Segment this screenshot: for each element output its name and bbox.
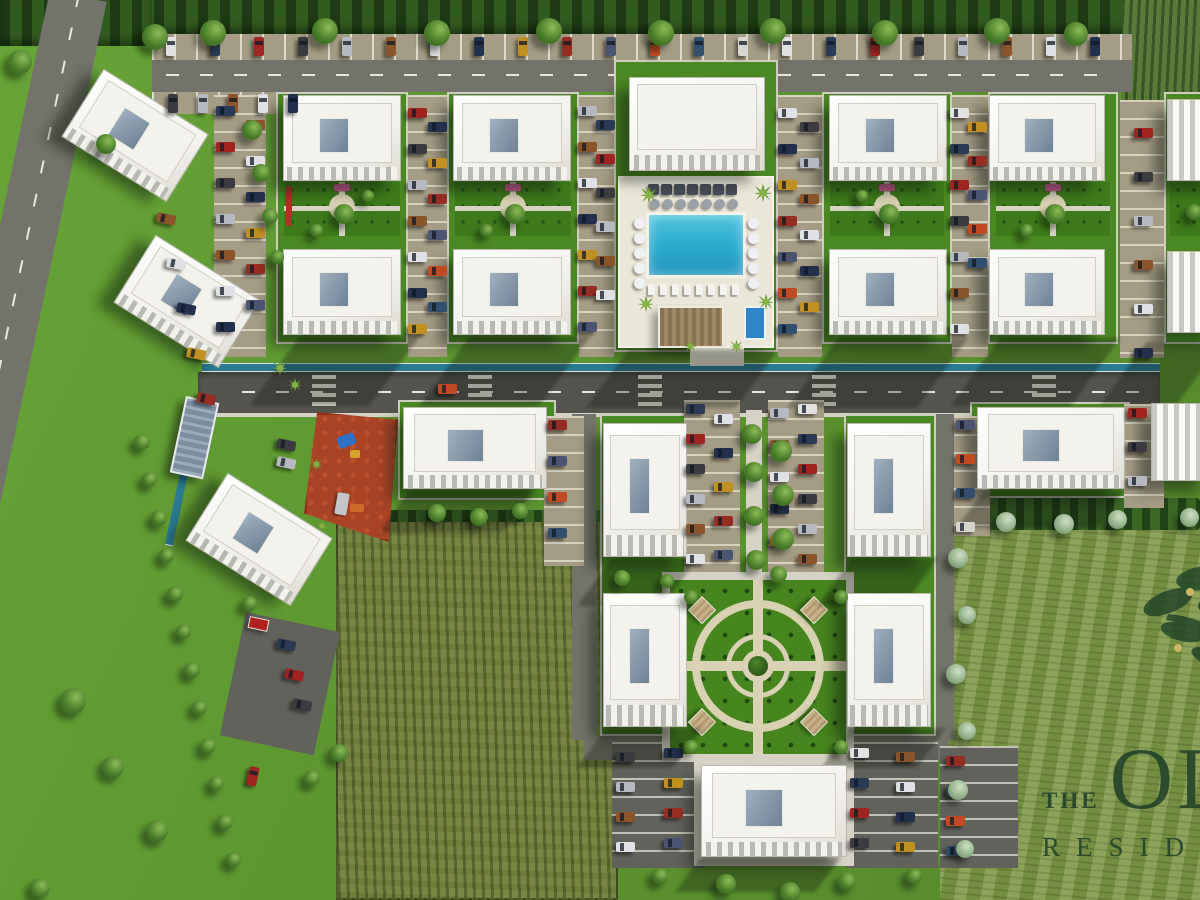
car-windshield (718, 517, 722, 525)
parked-car (950, 108, 969, 118)
parked-car (896, 782, 915, 792)
car-windshield (1138, 349, 1142, 357)
parked-car (778, 108, 797, 118)
roof-panel (231, 511, 275, 556)
cabana-canopy (713, 184, 724, 195)
parked-car (596, 256, 615, 266)
car-windshield (739, 41, 747, 45)
parked-car (896, 842, 915, 852)
parked-car (216, 214, 235, 224)
apartment-building (830, 96, 946, 180)
tree (505, 204, 525, 224)
logo-title: THE OLIVE (1042, 736, 1200, 824)
parked-car (778, 252, 797, 262)
car-windshield (600, 257, 604, 265)
car-windshield (668, 779, 672, 787)
car-windshield (288, 670, 294, 679)
car-windshield (774, 505, 778, 513)
car-windshield (900, 783, 904, 791)
tree (102, 756, 124, 778)
car-windshield (180, 304, 186, 313)
parked-car (548, 420, 567, 430)
car-windshield (954, 145, 958, 153)
parked-car (596, 222, 615, 232)
car-windshield (432, 267, 436, 275)
olive-tree-logo-icon (1118, 540, 1200, 740)
car-windshield (442, 385, 446, 393)
apartment-building (830, 250, 946, 334)
car-windshield (600, 155, 604, 163)
tree (146, 820, 168, 842)
apartment-building (630, 78, 764, 170)
roof-panel (489, 118, 519, 153)
car-windshield (412, 325, 416, 333)
parked-car (428, 158, 447, 168)
flower-bed (286, 186, 292, 226)
car-windshield (972, 157, 976, 165)
cabana-canopy (661, 184, 672, 195)
car-windshield (954, 325, 958, 333)
roof-panel (865, 272, 895, 307)
tree (184, 662, 200, 678)
parked-car (246, 766, 260, 787)
roof-panel (319, 272, 349, 307)
car-windshield (582, 179, 586, 187)
cabana-canopy (726, 184, 737, 195)
car-windshield (432, 231, 436, 239)
tree (159, 548, 174, 563)
car-windshield (915, 41, 923, 45)
apartment-building (284, 96, 400, 180)
car-windshield (249, 770, 258, 776)
car-windshield (954, 253, 958, 261)
sun-lounger (696, 284, 703, 295)
parked-car (798, 434, 817, 444)
car-windshield (804, 267, 808, 275)
parked-car (246, 228, 265, 238)
parked-car (428, 302, 447, 312)
pool-umbrella (748, 248, 759, 259)
tree (744, 506, 764, 526)
car-windshield (900, 843, 904, 851)
tree (958, 722, 976, 740)
car-windshield (299, 41, 307, 45)
tree (660, 574, 674, 588)
sun-lounger (648, 284, 655, 295)
tree (1108, 510, 1127, 529)
car-windshield (960, 455, 964, 463)
tree (906, 868, 922, 884)
tree (200, 20, 226, 46)
parked-car (694, 37, 704, 56)
parked-car (714, 448, 733, 458)
car-windshield (718, 415, 722, 423)
tree (209, 776, 224, 791)
car-windshield (718, 551, 722, 559)
tree (772, 484, 794, 506)
car-windshield (804, 123, 808, 131)
parked-car (578, 322, 597, 332)
parked-car (616, 812, 635, 822)
cabana-canopy (700, 184, 711, 195)
car-windshield (582, 107, 586, 115)
parked-car (408, 144, 427, 154)
parked-car (288, 94, 298, 113)
car-windshield (607, 41, 615, 45)
parked-car (686, 524, 705, 534)
car-windshield (782, 217, 786, 225)
parked-car (850, 838, 869, 848)
tree (270, 250, 284, 264)
parked-car (216, 286, 235, 296)
tree (1180, 508, 1199, 527)
parked-car (606, 37, 616, 56)
parked-car (778, 288, 797, 298)
car-windshield (600, 223, 604, 231)
tree (242, 596, 257, 611)
parked-car (578, 142, 597, 152)
car-windshield (802, 405, 806, 413)
tree (956, 840, 974, 858)
car-windshield (782, 289, 786, 297)
tree (312, 18, 338, 44)
parked-car (664, 838, 683, 848)
parked-car (664, 778, 683, 788)
car-windshield (600, 291, 604, 299)
tree (652, 868, 668, 884)
car-windshield (250, 157, 254, 165)
parked-car (714, 414, 733, 424)
parked-car (778, 216, 797, 226)
parked-car (1134, 260, 1153, 270)
car-windshield (972, 123, 976, 131)
roof-panel (865, 118, 895, 153)
car-windshield (950, 757, 954, 765)
flower-bed (505, 184, 521, 191)
car-windshield (432, 123, 436, 131)
apartment-building (848, 424, 930, 556)
car-windshield (250, 265, 254, 273)
car-windshield (220, 143, 224, 151)
patio-table (702, 199, 712, 209)
car-windshield (296, 700, 302, 709)
car-windshield (718, 449, 722, 457)
tree (716, 874, 736, 894)
tree (872, 20, 898, 46)
car-windshield (620, 843, 624, 851)
parked-car (1134, 348, 1153, 358)
car-windshield (802, 555, 806, 563)
tree (96, 134, 116, 154)
car-windshield (690, 495, 694, 503)
car-windshield (972, 225, 976, 233)
car-windshield (250, 229, 254, 237)
parked-car (850, 748, 869, 758)
logo-the-text: THE (1042, 788, 1100, 814)
car-windshield (432, 195, 436, 203)
car-windshield (1132, 409, 1136, 417)
parked-car (798, 404, 817, 414)
tree (428, 504, 446, 522)
car-windshield (668, 839, 672, 847)
car-windshield (552, 421, 556, 429)
car-windshield (620, 813, 624, 821)
car-windshield (387, 41, 395, 45)
car-windshield (802, 495, 806, 503)
car-windshield (343, 41, 351, 45)
car-windshield (412, 289, 416, 297)
roof-panel (745, 789, 782, 827)
car-windshield (280, 640, 286, 649)
tree (648, 20, 674, 46)
tree (834, 740, 848, 754)
car-windshield (289, 98, 297, 102)
kids-pool (744, 306, 766, 340)
roof-panel (629, 628, 650, 683)
parked-car (578, 214, 597, 224)
car-windshield (690, 405, 694, 413)
car-windshield (220, 287, 224, 295)
apartment-building (1152, 404, 1200, 480)
site-plan-render (0, 0, 1200, 900)
car-windshield (412, 109, 416, 117)
sun-lounger (684, 284, 691, 295)
parked-car (714, 482, 733, 492)
play-structure (350, 504, 364, 512)
parked-car (956, 488, 975, 498)
tree (772, 528, 794, 550)
parked-car (216, 106, 235, 116)
parked-car (616, 752, 635, 762)
parked-car (956, 420, 975, 430)
car-windshield (782, 181, 786, 189)
car-windshield (563, 41, 571, 45)
roof-panel (1024, 118, 1054, 153)
car-windshield (1047, 41, 1055, 45)
tree (304, 770, 320, 786)
tree (948, 780, 968, 800)
parked-car (246, 264, 265, 274)
car-windshield (229, 98, 237, 102)
car-windshield (220, 215, 224, 223)
car-windshield (854, 839, 858, 847)
car-windshield (972, 259, 976, 267)
apartment-building (454, 96, 570, 180)
car-windshield (954, 109, 958, 117)
parked-car (826, 37, 836, 56)
tree (217, 814, 233, 830)
sun-lounger (672, 284, 679, 295)
parked-car (156, 212, 177, 226)
parked-car (686, 434, 705, 444)
car-windshield (782, 145, 786, 153)
parked-car (1128, 442, 1147, 452)
parked-car (1090, 37, 1100, 56)
car-windshield (972, 191, 976, 199)
car-windshield (1138, 305, 1142, 313)
parking-stall-lines (544, 416, 584, 566)
parked-car (596, 154, 615, 164)
car-windshield (519, 41, 527, 45)
tree (536, 18, 562, 44)
car-windshield (802, 465, 806, 473)
pool-umbrella (634, 218, 645, 229)
tree (770, 566, 787, 583)
tree (838, 872, 856, 890)
parked-car (968, 224, 987, 234)
car-windshield (1138, 217, 1142, 225)
apartment-building (990, 96, 1104, 180)
parked-car (254, 37, 264, 56)
car-windshield (167, 41, 175, 45)
parked-car (968, 122, 987, 132)
pool-umbrella (634, 263, 645, 274)
pool-umbrella (748, 278, 759, 289)
parked-car (276, 438, 297, 452)
pool-umbrella (634, 278, 645, 289)
apartment-building (702, 766, 846, 856)
parked-car (1134, 216, 1153, 226)
parked-car (548, 456, 567, 466)
roof-panel (1022, 429, 1060, 463)
parked-car (578, 286, 597, 296)
parked-car (896, 812, 915, 822)
sun-lounger (720, 284, 727, 295)
tree (744, 462, 764, 482)
tree (167, 586, 183, 602)
parked-car (958, 37, 968, 56)
parked-car (956, 454, 975, 464)
tree (362, 190, 374, 202)
tree (252, 164, 270, 182)
car-windshield (900, 753, 904, 761)
parked-car (408, 252, 427, 262)
car-windshield (220, 323, 224, 331)
tree (151, 510, 167, 526)
pool-umbrella (748, 233, 759, 244)
parked-car (686, 554, 705, 564)
car-windshield (802, 435, 806, 443)
car-windshield (950, 817, 954, 825)
tree (684, 590, 698, 604)
parked-car (616, 842, 635, 852)
car-windshield (1138, 173, 1142, 181)
tree (480, 224, 493, 237)
parked-car (428, 194, 447, 204)
parked-car (596, 290, 615, 300)
apartment-building (404, 408, 546, 488)
tree (834, 590, 848, 604)
hedge (0, 0, 1200, 34)
parked-car (968, 190, 987, 200)
car-windshield (804, 231, 808, 239)
patio-table (689, 199, 699, 209)
car-windshield (804, 159, 808, 167)
tree (242, 120, 262, 140)
pool-umbrella (748, 218, 759, 229)
patio-table (728, 199, 738, 209)
car-windshield (552, 457, 556, 465)
cast-shadow (675, 858, 840, 892)
parked-car (408, 108, 427, 118)
car-windshield (412, 145, 416, 153)
parked-car (798, 464, 817, 474)
parked-car (686, 404, 705, 414)
parked-car (258, 94, 268, 113)
car-windshield (280, 458, 286, 467)
apartment-building (604, 424, 686, 556)
car-windshield (690, 435, 694, 443)
car-windshield (954, 181, 958, 189)
car-windshield (412, 181, 416, 189)
parked-car (1134, 128, 1153, 138)
parked-car (578, 250, 597, 260)
apartment-building (1168, 252, 1200, 332)
parking-stall-lines (408, 95, 447, 357)
tree (1045, 204, 1065, 224)
tree (330, 744, 348, 762)
apartment-building (978, 408, 1124, 488)
cabana-canopy (687, 184, 698, 195)
parked-car (408, 288, 427, 298)
car-windshield (854, 779, 858, 787)
parking-lot (220, 612, 340, 755)
parked-car (946, 756, 965, 766)
pool-umbrella (634, 233, 645, 244)
parked-car (562, 37, 572, 56)
parked-car (798, 494, 817, 504)
car-windshield (782, 253, 786, 261)
car-windshield (432, 159, 436, 167)
parked-car (778, 324, 797, 334)
roof-panel (629, 458, 650, 513)
parked-car (578, 178, 597, 188)
car-windshield (412, 253, 416, 261)
apartment-building (848, 594, 930, 726)
tree (262, 208, 278, 224)
car-windshield (802, 525, 806, 533)
tree (470, 508, 488, 526)
car-windshield (718, 483, 722, 491)
roof-panel (1024, 272, 1054, 307)
car-windshield (954, 217, 958, 225)
apartment-building (990, 250, 1104, 334)
parked-car (1128, 476, 1147, 486)
car-windshield (432, 303, 436, 311)
pool-umbrella (748, 263, 759, 274)
car-windshield (827, 41, 835, 45)
car-windshield (582, 251, 586, 259)
tree (334, 204, 354, 224)
parked-car (950, 144, 969, 154)
car-windshield (690, 525, 694, 533)
parked-car (778, 144, 797, 154)
car-windshield (1132, 443, 1136, 451)
car-windshield (668, 809, 672, 817)
tree (946, 664, 966, 684)
car-windshield (169, 98, 177, 102)
tree (200, 738, 216, 754)
car-windshield (280, 440, 286, 449)
tree (996, 512, 1016, 532)
flower-bed (1045, 184, 1061, 191)
parked-car (950, 216, 969, 226)
tree (142, 24, 168, 50)
parked-car (664, 748, 683, 758)
tree (142, 472, 157, 487)
parked-car (246, 192, 265, 202)
pool-umbrella (634, 248, 645, 259)
